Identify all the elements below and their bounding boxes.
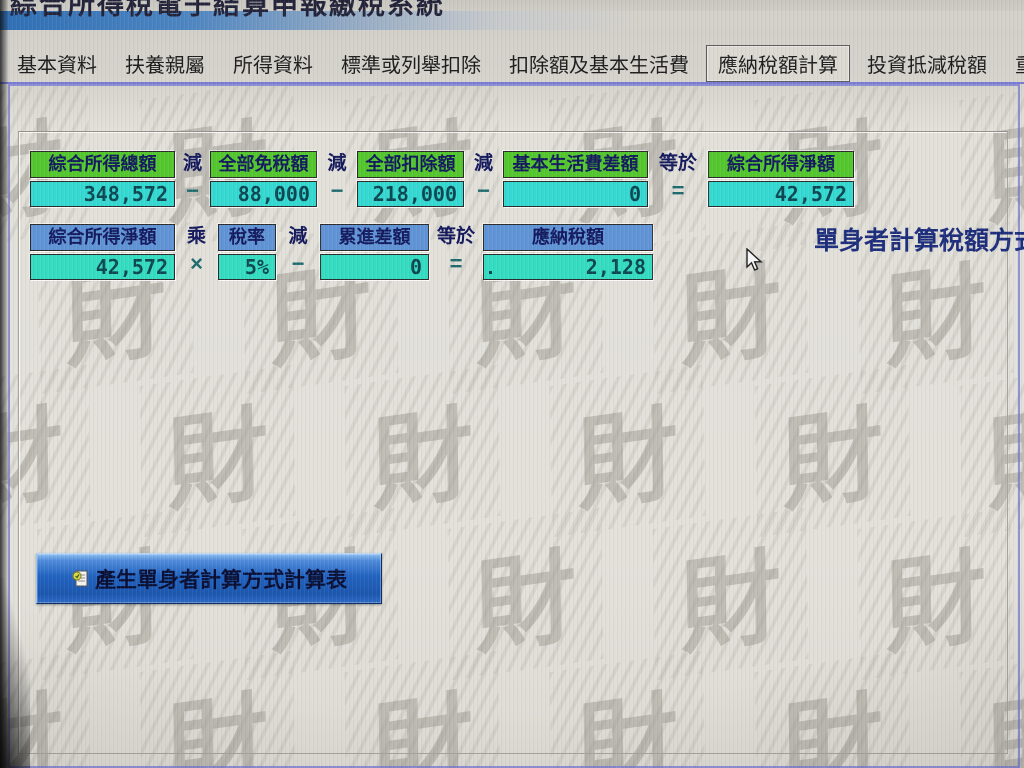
field-label: 累進差額 bbox=[320, 224, 429, 251]
field-net-income: 綜合所得淨額 42,572 bbox=[708, 151, 854, 207]
single-filer-heading: 單身者計算稅額方式 bbox=[814, 221, 1024, 257]
watermark-finance-logo: 財 bbox=[0, 365, 91, 538]
field-label: 綜合所得淨額 bbox=[708, 151, 854, 178]
operator-equals: 等於 = bbox=[648, 151, 708, 203]
field-total-exemption: 全部免稅額 88,000 bbox=[210, 151, 317, 207]
field-tax-rate: 稅率 5% bbox=[218, 224, 276, 280]
field-total-deduction: 全部扣除額 218,000 bbox=[357, 151, 464, 207]
operator-minus: 減 − bbox=[464, 151, 503, 203]
field-label: 應納稅額 bbox=[483, 224, 653, 251]
total-income-value[interactable]: 348,572 bbox=[30, 181, 175, 207]
field-label: 基本生活費差額 bbox=[503, 151, 648, 178]
operator-minus: 減 − bbox=[317, 151, 357, 203]
net-income-value[interactable]: 42,572 bbox=[708, 181, 854, 207]
watermark-finance-logo: 財 bbox=[139, 651, 295, 768]
watermark-finance-logo: 財 bbox=[0, 651, 91, 768]
operator-equals: 等於 = bbox=[429, 224, 483, 276]
progressive-difference-value[interactable]: 0 bbox=[320, 254, 429, 280]
field-label: 稅率 bbox=[218, 224, 276, 251]
tab-dependents[interactable]: 扶養親屬 bbox=[114, 46, 216, 81]
operator-minus: 減 − bbox=[175, 151, 210, 203]
watermark-finance-logo: 財 bbox=[754, 651, 910, 768]
total-deduction-value[interactable]: 218,000 bbox=[357, 181, 464, 207]
field-label: 全部扣除額 bbox=[357, 151, 464, 178]
operator-multiply: 乘 × bbox=[175, 224, 218, 276]
basic-living-difference-value[interactable]: 0 bbox=[503, 181, 648, 207]
tax-rate-value[interactable]: 5% bbox=[218, 254, 276, 280]
field-label: 綜合所得淨額 bbox=[30, 224, 175, 251]
operator-minus: 減 − bbox=[276, 224, 320, 276]
tab-investment-credit[interactable]: 投資抵減稅額 bbox=[856, 46, 998, 81]
tax-payable-value[interactable]: 2,128 bbox=[483, 254, 653, 280]
field-net-income-2: 綜合所得淨額 42,572 bbox=[30, 224, 175, 280]
generate-button-label: 產生單身者計算方式計算表 bbox=[95, 564, 347, 594]
tab-income[interactable]: 所得資料 bbox=[222, 46, 324, 81]
caret-dot bbox=[489, 271, 492, 274]
field-label: 全部免稅額 bbox=[210, 151, 317, 178]
field-total-income: 綜合所得總額 348,572 bbox=[30, 151, 175, 207]
total-exemption-value[interactable]: 88,000 bbox=[210, 181, 317, 207]
tax-app-screen: 綜合所得稅電子結算申報繳稅系統 基本資料 扶養親屬 所得資料 標準或列舉扣除 扣… bbox=[0, 0, 1024, 768]
tab-standard-itemized-deduction[interactable]: 標準或列舉扣除 bbox=[330, 46, 492, 81]
field-basic-living-difference: 基本生活費差額 0 bbox=[503, 151, 648, 207]
watermark-finance-logo: 財 bbox=[959, 651, 1024, 768]
calc-row-net-income: 綜合所得總額 348,572 減 − 全部免稅額 88,000 減 − 全部扣除… bbox=[30, 151, 854, 207]
net-income-2-value[interactable]: 42,572 bbox=[30, 254, 175, 280]
tab-bar: 基本資料 扶養親屬 所得資料 標準或列舉扣除 扣除額及基本生活費 應納稅額計算 … bbox=[0, 44, 1024, 84]
calc-row-tax-payable: 綜合所得淨額 42,572 乘 × 稅率 5% 減 − 累進差額 0 等於 = … bbox=[30, 224, 653, 280]
report-document-icon bbox=[71, 569, 90, 588]
tab-deductions-basic-living[interactable]: 扣除額及基本生活費 bbox=[498, 46, 700, 81]
mouse-cursor-icon bbox=[745, 248, 767, 277]
watermark-finance-logo: 財 bbox=[344, 651, 500, 768]
generate-single-calc-table-button[interactable]: 產生單身者計算方式計算表 bbox=[36, 553, 382, 604]
field-tax-payable: 應納稅額 2,128 bbox=[483, 224, 653, 280]
tab-tax-calculation[interactable]: 應納稅額計算 bbox=[706, 45, 850, 82]
watermark-finance-logo: 財 bbox=[549, 651, 705, 768]
field-label: 綜合所得總額 bbox=[30, 151, 175, 178]
window-title: 綜合所得稅電子結算申報繳稅系統 bbox=[10, 0, 445, 22]
field-progressive-difference: 累進差額 0 bbox=[320, 224, 429, 280]
tab-basic-info[interactable]: 基本資料 bbox=[6, 46, 108, 81]
tab-home-repurchase[interactable]: 重購自用住宅 bbox=[1004, 46, 1024, 81]
